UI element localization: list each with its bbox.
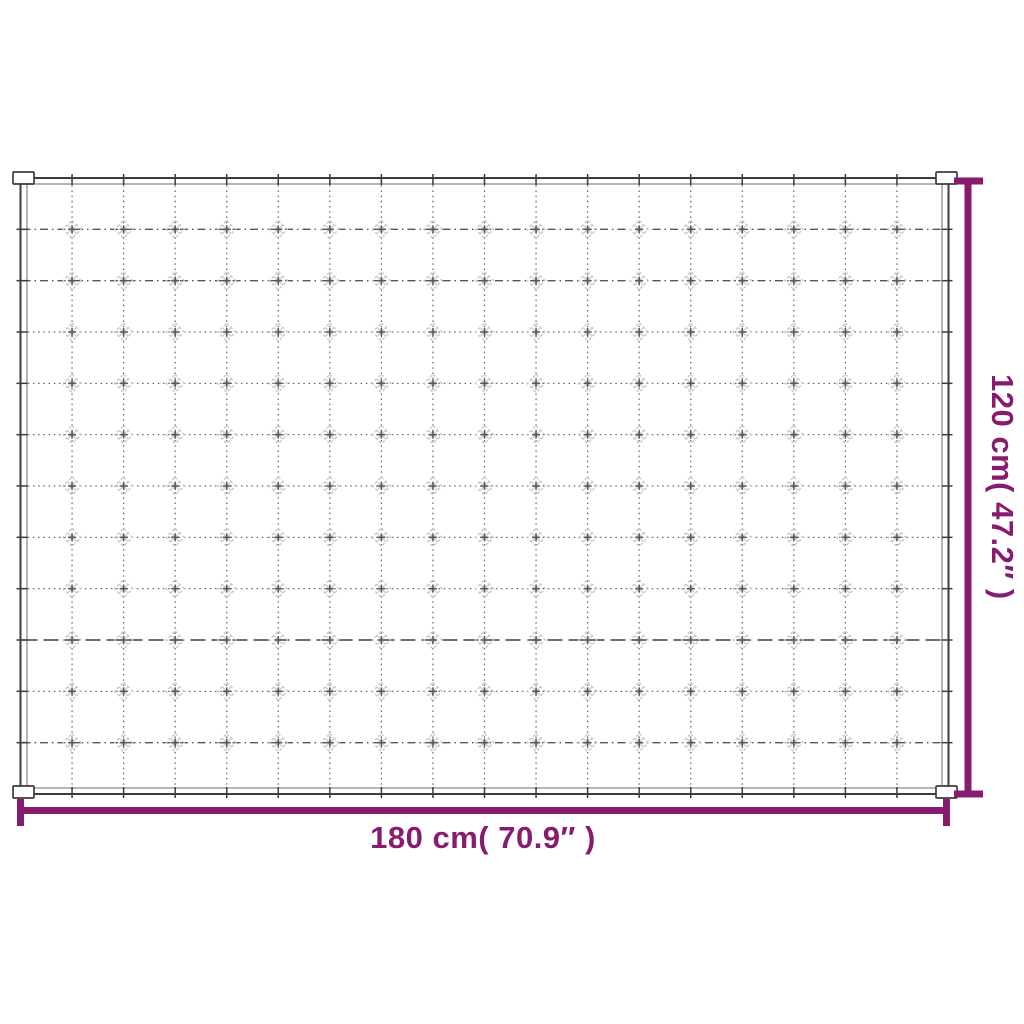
height-dimension-label: 120 cm( 47.2″ ) — [980, 178, 1024, 795]
product-dimension-diagram: 180 cm( 70.9″ ) 120 cm( 47.2″ ) — [0, 0, 1024, 1024]
height-dimension-line — [954, 181, 983, 794]
blanket-illustration — [0, 0, 1024, 1024]
width-dimension-label: 180 cm( 70.9″ ) — [233, 820, 733, 856]
